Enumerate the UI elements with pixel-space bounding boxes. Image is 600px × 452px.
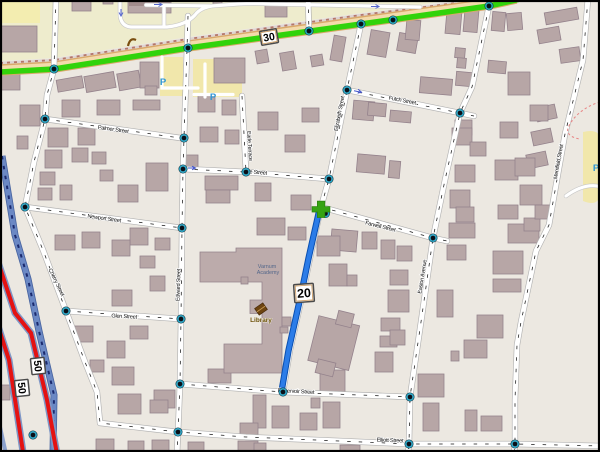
svg-text:50: 50 <box>31 360 44 373</box>
svg-text:Academy: Academy <box>257 270 280 276</box>
svg-text:Edward Street: Edward Street <box>175 268 182 301</box>
svg-text:P: P <box>210 92 217 103</box>
svg-text:P: P <box>160 77 167 88</box>
svg-text:30: 30 <box>262 31 276 45</box>
svg-text:50: 50 <box>15 382 28 395</box>
svg-text:Elliott Street: Elliott Street <box>377 438 405 445</box>
svg-text:20: 20 <box>297 286 312 301</box>
svg-text:Library: Library <box>250 317 272 324</box>
